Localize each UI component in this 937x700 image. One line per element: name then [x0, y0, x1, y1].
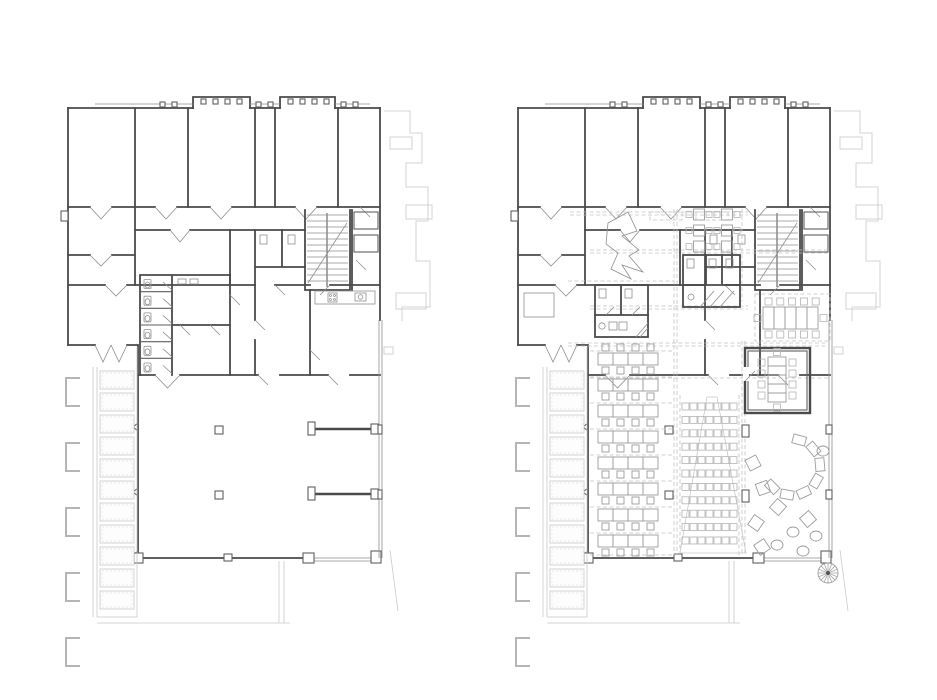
- meeting-room: [743, 348, 810, 413]
- wc-block: [140, 275, 230, 375]
- lounge-arc: [764, 434, 825, 500]
- plan-furnished: [511, 97, 882, 666]
- floor-plan-canvas: [0, 0, 937, 700]
- floor-plans-svg: [0, 0, 937, 700]
- wc-cluster-a: [595, 285, 648, 337]
- existing-interior: [140, 275, 378, 500]
- wc-stalls: [144, 280, 172, 374]
- context-windows: [66, 378, 80, 666]
- lightwell-grid: [100, 371, 134, 609]
- meeting-carpet: [755, 294, 830, 341]
- auditorium-seats: [682, 403, 737, 544]
- poufs: [745, 446, 829, 556]
- hall-partition-stubs: [308, 422, 378, 500]
- kitchen-counter: [315, 291, 375, 304]
- context-windows: [516, 378, 530, 666]
- meeting-table-open: [754, 298, 827, 338]
- faceted-sculpture: [606, 212, 643, 279]
- meeting-room-table: [758, 349, 796, 412]
- plan-existing: [61, 97, 432, 666]
- lightwell-grid: [550, 371, 584, 609]
- spiral-stair-icon: [818, 563, 838, 583]
